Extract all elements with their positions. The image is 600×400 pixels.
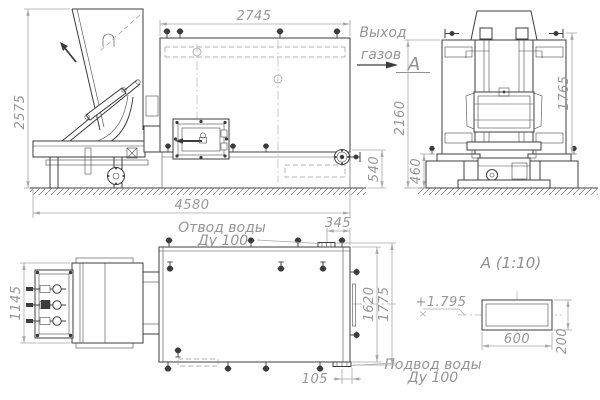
dim-1775: 1775	[377, 286, 392, 321]
feeder-shafts	[26, 285, 66, 325]
gas-outlet-label-1: Выход	[359, 25, 406, 41]
detail-a-title: А (1:10)	[480, 254, 541, 272]
duct-section-outer	[482, 300, 552, 330]
dim-460: 460	[409, 158, 424, 184]
boiler-body	[160, 38, 350, 188]
valve-symbol	[429, 146, 435, 154]
dim-1620: 1620	[362, 286, 377, 321]
access-door	[173, 119, 229, 159]
water-outlet-nozzle	[318, 243, 335, 248]
valve-symbol	[166, 238, 173, 247]
door-hinge	[221, 130, 227, 137]
skid-base	[458, 180, 550, 188]
dim-200: 200	[555, 328, 570, 354]
hydraulic-cylinder	[86, 88, 126, 120]
inner-frame	[466, 28, 542, 150]
feeder-plan	[26, 258, 159, 348]
base-plate-left	[437, 154, 480, 161]
valve-symbol	[164, 29, 171, 38]
valve-symbol	[339, 238, 346, 247]
detail-a-view: А (1:10) +1.795 600 200	[415, 254, 572, 354]
ground-hatch	[30, 188, 366, 195]
door-hinge	[221, 143, 227, 150]
valve-symbol	[165, 362, 172, 371]
dim-1765: 1765	[557, 75, 572, 110]
water-inlet-label-2: Ду 100	[407, 370, 458, 386]
base-plate-right	[528, 154, 571, 161]
boiler-technical-drawing: 2745 2575 4580 540 Выход газов А	[0, 0, 600, 400]
gas-outlet-callout: Выход газов А	[357, 25, 430, 75]
dim-540: 540	[367, 156, 382, 182]
dim-345: 345	[325, 216, 351, 231]
section-mark-a: А	[407, 54, 420, 75]
valve-symbol	[334, 29, 341, 38]
auger-housing	[144, 126, 160, 152]
plan-view: Отвод воды Ду 100 Подвод воды Ду 100 114…	[9, 216, 482, 387]
level-mark: +1.795	[415, 295, 466, 310]
dim-2575: 2575	[13, 94, 28, 129]
side-view: 2745 2575 4580 540	[13, 9, 386, 218]
dim-4580: 4580	[174, 198, 209, 213]
valve-symbol	[225, 362, 232, 371]
dim-1145: 1145	[9, 285, 24, 320]
valve-symbol	[177, 29, 184, 38]
outlet-flange	[335, 150, 361, 165]
valve-symbol	[350, 269, 359, 276]
valve-symbol	[277, 29, 284, 38]
valve-symbol	[263, 362, 270, 371]
water-inlet-nozzle	[333, 362, 351, 367]
dim-2160: 2160	[393, 100, 408, 135]
grate-platform	[474, 92, 534, 132]
boiler-body-plan	[159, 247, 350, 362]
dim-105: 105	[302, 372, 328, 387]
frame-leg	[50, 157, 58, 188]
valve-symbol	[317, 362, 324, 371]
hopper-handle-icon	[103, 34, 114, 47]
ground-hatch	[418, 188, 598, 195]
gear-motor	[108, 168, 125, 185]
dim-2745: 2745	[236, 9, 271, 24]
dim-600: 600	[504, 332, 530, 347]
water-outlet-label-2: Ду 100	[197, 233, 248, 249]
gas-outlet-label-2: газов	[361, 47, 401, 63]
valve-symbol	[248, 238, 255, 247]
end-view: 2160 460 1765	[393, 11, 598, 195]
valve-symbol	[350, 332, 359, 339]
level-gauge-tube	[353, 284, 356, 326]
fuel-hopper	[72, 9, 143, 147]
